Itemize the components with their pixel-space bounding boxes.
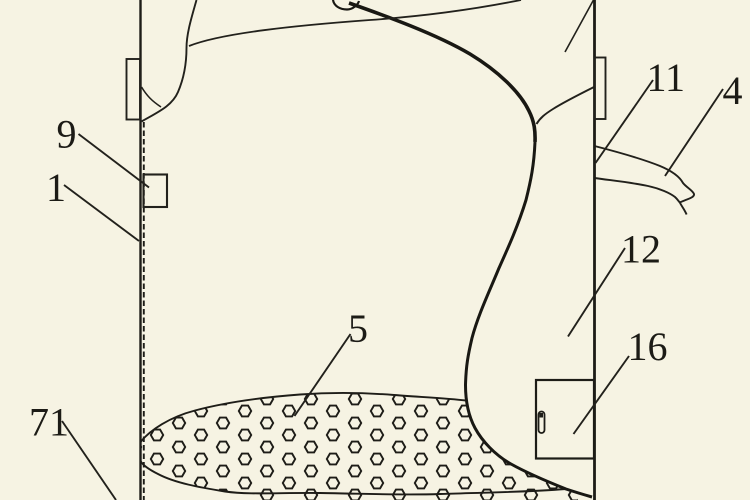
- svg-text:1: 1: [46, 165, 66, 210]
- svg-text:9: 9: [57, 112, 77, 157]
- svg-text:16: 16: [628, 324, 668, 369]
- svg-text:71: 71: [29, 400, 69, 445]
- svg-text:12: 12: [621, 227, 661, 272]
- svg-text:4: 4: [723, 68, 743, 113]
- svg-text:5: 5: [348, 306, 368, 351]
- svg-text:11: 11: [647, 55, 686, 100]
